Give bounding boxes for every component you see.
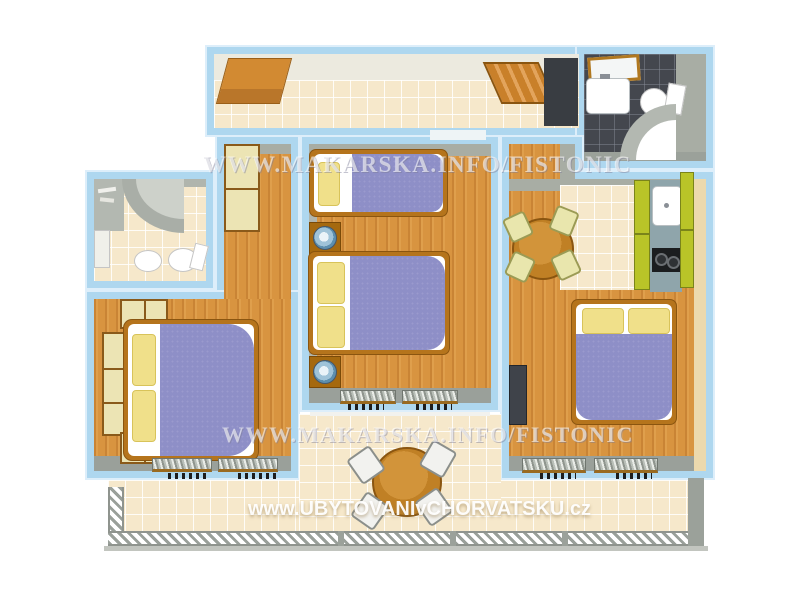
bed-double-right-pillow-2 xyxy=(628,308,670,334)
railing-post-3 xyxy=(562,531,568,546)
bedroom-middle-sliding-door-1 xyxy=(340,390,396,404)
bedroom-left-shelf-column xyxy=(102,332,126,436)
bed-double-right-blanket xyxy=(576,334,672,420)
hallway-dark-recess xyxy=(544,58,578,126)
living-room-sliding-door-1 xyxy=(522,458,586,473)
kitchen-cabinet-right xyxy=(680,172,694,288)
bed-double-middle-pillow-2 xyxy=(317,306,345,348)
lamp-middle-2 xyxy=(313,360,337,384)
bed-double-left-pillow-2 xyxy=(132,390,156,442)
bedroom-middle-door-track-1 xyxy=(348,404,384,410)
bedroom-left-sliding-door-2 xyxy=(218,458,278,472)
kitchen-cabinet-left xyxy=(634,180,650,290)
bathroom-left-bidet xyxy=(134,250,162,272)
bedroom-middle-door-track-2 xyxy=(416,404,452,410)
watermark-ubytovani: www.UBYTOVANIvCHORVATSKU.cz xyxy=(248,498,591,521)
hallway-wardrobe xyxy=(216,58,292,104)
bedroom-middle-sliding-door-2 xyxy=(402,390,458,404)
lamp-middle-1 xyxy=(313,226,337,250)
railing-post-1 xyxy=(338,531,344,546)
watermark-makarska-top: WWW.MAKARSKA.INFO/FISTONIC xyxy=(203,152,632,178)
railing-post-2 xyxy=(450,531,456,546)
living-room-dark-cabinet xyxy=(509,365,527,425)
bathroom-top-sink xyxy=(586,78,630,114)
bathroom-top-faucet xyxy=(600,74,610,79)
balcony-threshold xyxy=(310,412,490,416)
living-room-door-track-1 xyxy=(540,473,576,479)
balcony-right-wall xyxy=(688,478,704,546)
hallway-door-opening xyxy=(430,130,486,140)
bed-double-right-pillow-1 xyxy=(582,308,624,334)
bathroom-left-door xyxy=(94,230,110,268)
stove-burner-1 xyxy=(655,253,668,266)
balcony-shadow xyxy=(104,546,708,551)
kitchen-right-wall-face xyxy=(694,179,706,471)
bed-double-left-pillow-1 xyxy=(132,334,156,386)
balcony-railing-bottom xyxy=(108,531,704,546)
living-room-sliding-door-2 xyxy=(594,458,658,473)
floor-plan: WWW.MAKARSKA.INFO/FISTONIC WWW.MAKARSKA.… xyxy=(0,0,800,600)
bed-double-middle-blanket xyxy=(350,256,445,350)
bedroom-left-door-track-1 xyxy=(168,473,208,479)
bedroom-middle-wall-face-south xyxy=(309,388,491,403)
watermark-makarska-middle: WWW.MAKARSKA.INFO/FISTONIC xyxy=(222,422,634,448)
bedroom-left-door-track-2 xyxy=(238,473,278,479)
room-hallway xyxy=(214,54,579,128)
stove-burner-2 xyxy=(667,256,680,269)
bed-double-middle-pillow-1 xyxy=(317,262,345,304)
kitchen-sink-drain xyxy=(664,203,669,208)
bedroom-left-sliding-door-1 xyxy=(152,458,212,472)
living-room-door-track-2 xyxy=(616,473,652,479)
